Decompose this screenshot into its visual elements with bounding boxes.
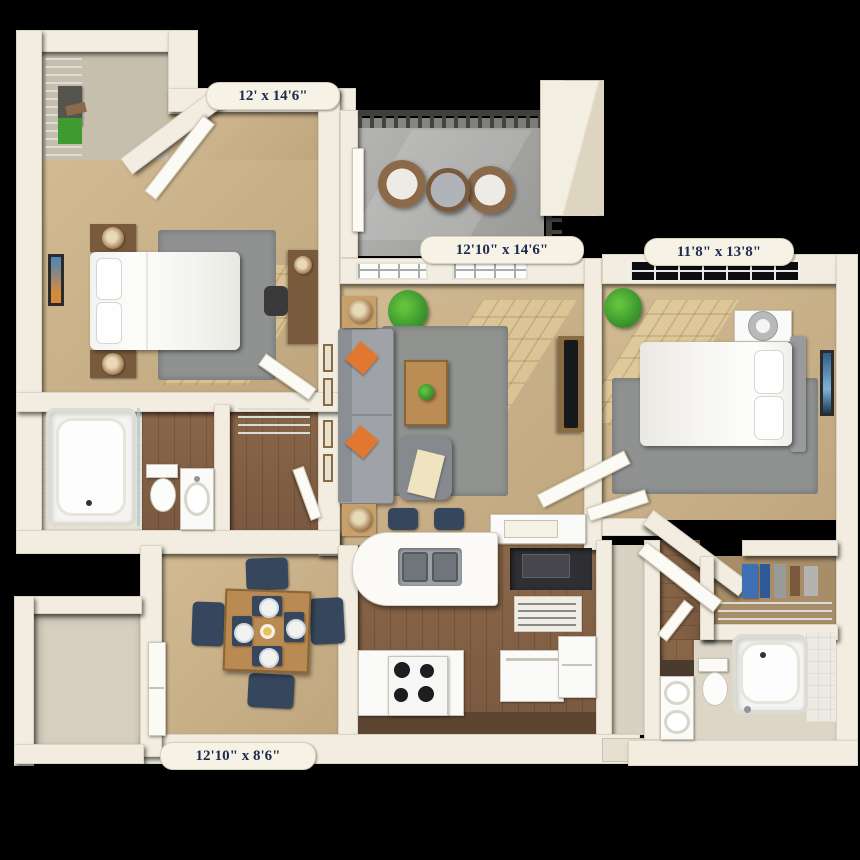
bathroom1-glass-door [137,408,140,526]
stove-burner-3-icon [394,688,408,702]
wall-left-exterior [16,30,42,548]
bathroom2-drain-icon [760,652,766,658]
balcony-door [352,148,364,232]
side-lamp-2-icon [348,507,372,531]
bedroom1-lamp-b-icon [102,353,124,375]
plate-bottom-icon [259,648,279,668]
bathroom2-sink-1-icon [664,681,690,705]
bedroom1-desk-lamp-icon [294,256,312,274]
chimney-column [540,80,604,216]
patio-table-icon [426,168,470,212]
bathroom1-toilet-icon [150,478,176,512]
bathroom2-toilet-icon [702,672,728,706]
bedroom1-desk-chair-icon [264,286,288,316]
bedroom1-pillow-1-icon [96,258,122,300]
dining-chair-left-icon [191,601,225,646]
patio-chair-2-icon [466,166,514,214]
wall-frame-4-icon [323,454,333,482]
wall-frame-3-icon [323,420,333,448]
storage-floor [34,614,140,748]
label-dining-text: 12'10" x 8'6" [196,748,281,764]
plate-top-icon [259,598,279,618]
wall-closet2-top [742,540,838,556]
label-living-text: 12'10" x 14'6" [456,242,549,258]
wall-bedroom1-right [318,88,340,556]
wall-bath1-bottom [16,530,340,554]
label-living-dimensions: 12'10" x 14'6" [420,236,584,264]
bathroom2-shower-tile [806,632,836,722]
hall1-linen-shelf-icon [238,408,310,434]
closet2-clothes-blue2-icon [760,564,770,598]
pantry-wire-shelf-icon [518,600,576,626]
bathroom1-toilet-tank-icon [146,464,178,478]
closet2-clothes-brown-icon [790,566,800,596]
wall-right-exterior [836,254,858,766]
wall-frame-1-icon [323,344,333,372]
bar-stool-1-icon [388,508,418,530]
wall-frame-2-icon [323,378,333,406]
dishwasher-handle [506,658,558,661]
kitchen-sink-basin-1 [402,552,428,582]
closet2-clothes-gray2-icon [804,566,818,596]
bathroom1-sink-icon [184,482,210,516]
bathroom2-counter-icon [660,660,694,676]
stove-burner-4-icon [418,686,434,702]
entry-desk-drawer [504,520,558,538]
bedroom1-artwork-icon [48,254,64,306]
living-window-2 [452,262,528,280]
label-bedroom1-text: 12' x 14'6" [238,88,307,104]
sofa-cushion-line [352,414,392,416]
bedroom1-duvet-fold [146,252,148,350]
balcony-railing-top [358,116,554,128]
floor-plan: 12' x 14'6" 12'10" x 14'6" 11'8" x 13'8"… [0,0,860,860]
dining-closet-door-split [148,687,164,689]
closet1-clothes-green-icon [58,118,82,144]
bedroom2-fan-icon [748,311,778,341]
bathroom2-sink-2-icon [664,710,690,734]
washer-icon [558,636,596,698]
dining-chair-bottom-icon [247,673,295,709]
closet2-wire-shelf-icon [718,596,832,620]
wall-closet1-top [16,30,192,52]
bedroom2-plant-icon [604,288,642,328]
wall-bottom-right [628,740,858,766]
label-bedroom2-text: 11'8" x 13'8" [677,244,761,260]
washer-lid-line [562,664,592,666]
label-bedroom2-dimensions: 11'8" x 13'8" [644,238,794,266]
wall-kitchen-entry [596,540,612,736]
coffee-table-plant-icon [418,384,434,400]
wall-storage-bottom [14,744,144,764]
label-bedroom1-dimensions: 12' x 14'6" [206,82,340,110]
label-dining-dimensions: 12'10" x 8'6" [160,742,316,770]
bedroom2-headboard-icon [790,336,806,452]
bedroom1-lamp-a-icon [102,227,124,249]
closet2-clothes-gray-icon [774,564,786,598]
bathroom1-drain-icon [86,500,92,506]
bathroom2-tub-basin [740,642,800,704]
wall-hall2-left [644,540,660,740]
kitchen-sink-basin-2 [432,552,458,582]
microwave-icon [522,554,570,578]
bar-stool-2-icon [434,508,464,530]
dining-chair-top-icon [245,557,288,590]
bathroom2-toilet-tank-icon [698,658,728,672]
patio-chair-1-icon [378,160,426,208]
bedroom1-pillow-2-icon [96,302,122,344]
bedroom2-artwork-icon [820,350,834,416]
bathroom1-faucet-icon [194,476,200,482]
entry-floor [612,545,644,735]
dining-chair-right-icon [309,597,345,645]
stove-burner-1-icon [394,662,410,678]
closet2-clothes-blue-icon [742,564,758,598]
living-window-1 [356,262,428,280]
wall-storage-left [14,596,34,766]
side-lamp-1-icon [348,299,372,323]
bedroom2-pillow-1-icon [754,350,784,394]
bedroom2-pillow-2-icon [754,396,784,440]
dining-closet-doors-icon [148,642,166,736]
plate-left-icon [234,623,254,643]
tv-icon [564,340,578,428]
wall-bath1-hall-divider [214,404,230,534]
bathroom2-faucet-icon [744,706,751,713]
dining-centerpiece-icon [260,624,275,639]
stove-burner-2-icon [420,664,434,678]
plate-right-icon [286,619,306,639]
